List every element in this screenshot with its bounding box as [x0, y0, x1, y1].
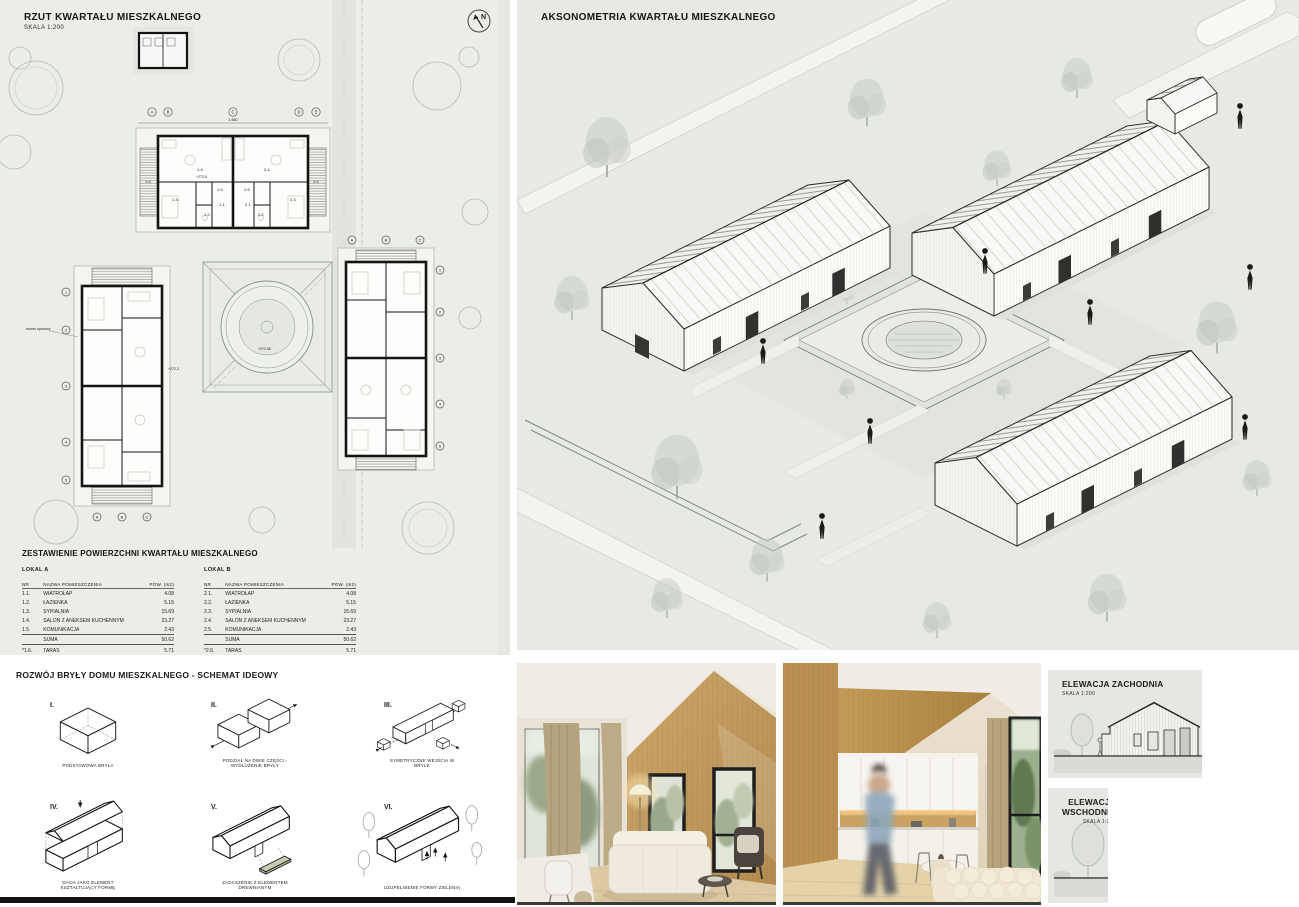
- elevation-west-scale: SKALA 1:200: [1062, 691, 1163, 697]
- massing-grid: I. PODSTAWOWA BRYŁA II.: [0, 680, 510, 906]
- massing-step-2: II. PODZIAŁ NA DWIE CZĘŚCI - WYDŁUŻENIE …: [209, 698, 301, 768]
- svg-text:2.2.: 2.2.: [258, 212, 265, 217]
- svg-text:N: N: [481, 14, 486, 21]
- area-row: 2.5.KOMUNIKACJA2.43: [204, 625, 356, 635]
- massing-numeral: I.: [50, 702, 54, 709]
- plan-plaza: +272,55: [203, 262, 332, 392]
- area-col-header: NR: [204, 580, 225, 589]
- area-summary-title: ZESTAWIENIE POWIERZCHNI KWARTAŁU MIESZKA…: [22, 549, 367, 558]
- axonometry-drawing: [517, 0, 1299, 650]
- svg-text:C: C: [231, 110, 234, 115]
- svg-text:A: A: [96, 515, 99, 520]
- massing-diagram-5: [169, 800, 341, 878]
- area-summary: ZESTAWIENIE POWIERZCHNI KWARTAŁU MIESZKA…: [22, 549, 367, 655]
- massing-caption: PODZIAŁ NA DWIE CZĘŚCI - WYDŁUŻENIE BRYŁ…: [209, 758, 301, 768]
- elevation-west-title: ELEWACJA ZACHODNIA: [1062, 679, 1163, 689]
- area-col-header: NR: [22, 580, 43, 589]
- area-table-lokal-b: LOKAL B NRNAZWA POMIESZCZENIAPOW. (m2)2.…: [204, 567, 356, 655]
- photo-interior-kitchen: [783, 663, 1041, 905]
- massing-step-6: VI.: [382, 800, 462, 890]
- area-row: 1.5.KOMUNIKACJA2.43: [22, 625, 174, 635]
- total-dimension: 1 660: [229, 118, 238, 122]
- massing-title: ROZWÓJ BRYŁY DOMU MIESZKALNEGO - SCHEMAT…: [0, 661, 510, 680]
- massing-numeral: V.: [211, 804, 217, 811]
- elevation-east-title-block: ELEWACJA WSCHODNIA SKALA 1:200: [1062, 797, 1108, 825]
- area-row: 1.1.WIATROŁAP4.08: [22, 589, 174, 599]
- svg-text:B: B: [167, 110, 170, 115]
- massing-numeral: IV.: [50, 804, 58, 811]
- spot-elevation-label: +272,3: [168, 367, 179, 371]
- svg-text:A: A: [351, 238, 354, 243]
- svg-text:1.6.: 1.6.: [145, 179, 152, 184]
- massing-diagram-1: [8, 698, 168, 761]
- page-edge-bar: [0, 897, 515, 903]
- plan-building-right: A B C 1 2 3 4 5: [338, 236, 444, 470]
- axonometry-panel: AKSONOMETRIA KWARTAŁU MIESZKALNEGO: [517, 0, 1299, 650]
- svg-text:B: B: [121, 515, 124, 520]
- elevation-west-card: ELEWACJA ZACHODNIA SKALA 1:200: [1048, 670, 1202, 778]
- area-row: 1.2.ŁAZIENKA5.15: [22, 598, 174, 607]
- area-row: 1.4.SALON Z ANEKSEM KUCHENNYM23.27: [22, 616, 174, 625]
- area-suma-row: SUMA50.62: [204, 635, 356, 645]
- massing-step-5: V.: [209, 800, 301, 890]
- area-row: 2.1.WIATROŁAP4.08: [204, 589, 356, 599]
- svg-text:2.6.: 2.6.: [313, 179, 320, 184]
- area-footnote-row: *1.6.TARAS5.71: [22, 645, 174, 656]
- elevations-panel: ELEWACJA ZACHODNIA SKALA 1:200: [1048, 670, 1297, 903]
- plan-refuse-building: [133, 27, 193, 74]
- spot-elevation-label: +272,6: [196, 175, 207, 179]
- massing-step-4: IV.: [48, 800, 128, 890]
- area-col-header: POW. (m2): [320, 580, 356, 589]
- desk-and-chair: [517, 853, 595, 905]
- site-plan-title-block: RZUT KWARTAŁU MIESZKALNEGO SKALA 1:200: [24, 12, 201, 31]
- area-col-header: POW. (m2): [138, 580, 174, 589]
- massing-diagram-3: [342, 698, 502, 756]
- site-plan-title: RZUT KWARTAŁU MIESZKALNEGO: [24, 12, 201, 23]
- svg-text:1.5.: 1.5.: [217, 187, 224, 192]
- svg-text:2.5.: 2.5.: [244, 187, 251, 192]
- massing-caption: UZUPEŁNIENIE FORMY ZIELENIĄ: [384, 885, 460, 890]
- elevation-trees: [1053, 822, 1108, 879]
- window-right: [987, 718, 1041, 893]
- svg-text:2.4.: 2.4.: [264, 167, 271, 172]
- svg-text:1.1.: 1.1.: [219, 202, 226, 207]
- axonometry-title: AKSONOMETRIA KWARTAŁU MIESZKALNEGO: [541, 12, 776, 23]
- area-footnote-row: *2.6.TARAS5.71: [204, 645, 356, 656]
- svg-text:1.2.: 1.2.: [204, 212, 211, 217]
- svg-text:C: C: [419, 238, 422, 243]
- presentation-board: 1.1. 1.2. 1.3. 1.4. 1.5. 1.6. 2.1. 2.2. …: [0, 0, 1299, 907]
- area-table: NRNAZWA POMIESZCZENIAPOW. (m2)1.1.WIATRO…: [22, 580, 174, 655]
- plan-building-top: [136, 128, 330, 232]
- massing-caption: SYMETRYCZNE WEJŚCIA W BRYLE: [382, 758, 462, 768]
- lokal-a-label: LOKAL A: [22, 567, 174, 576]
- massing-caption: ZADASZENIE Z ELEMENTEM DREWNIANYM: [209, 880, 301, 890]
- svg-text:C: C: [146, 515, 149, 520]
- svg-text:2.3.: 2.3.: [290, 197, 297, 202]
- area-table: NRNAZWA POMIESZCZENIAPOW. (m2)2.1.WIATRO…: [204, 580, 356, 655]
- svg-text:E: E: [315, 110, 318, 115]
- retaining-wall-label: murek oporowy: [26, 327, 51, 331]
- elevation-east-card: ELEWACJA WSCHODNIA SKALA 1:200: [1048, 788, 1108, 903]
- svg-text:1.4.: 1.4.: [197, 167, 204, 172]
- lokal-b-label: LOKAL B: [204, 567, 356, 576]
- svg-text:A: A: [151, 110, 154, 115]
- area-row: 1.3.SYPIALNIA15.69: [22, 607, 174, 616]
- site-plan-scale: SKALA 1:200: [24, 25, 201, 31]
- svg-text:D: D: [297, 110, 300, 115]
- area-row: 2.3.SYPIALNIA15.69: [204, 607, 356, 616]
- svg-text:1.3.: 1.3.: [172, 197, 179, 202]
- svg-text:2.1.: 2.1.: [245, 202, 252, 207]
- elevation-east-title: ELEWACJA WSCHODNIA: [1062, 797, 1108, 817]
- photo-interior-living: [517, 663, 776, 905]
- massing-caption: DACH JAKO ELEMENT KSZTAŁTUJĄCY FORMĘ: [48, 880, 128, 890]
- massing-caption: PODSTAWOWA BRYŁA: [62, 763, 113, 768]
- area-col-header: NAZWA POMIESZCZENIA: [225, 580, 319, 589]
- massing-diagram-2: [169, 698, 341, 756]
- area-col-header: NAZWA POMIESZCZENIA: [43, 580, 137, 589]
- area-table-lokal-a: LOKAL A NRNAZWA POMIESZCZENIAPOW. (m2)1.…: [22, 567, 174, 655]
- svg-text:B: B: [385, 238, 388, 243]
- massing-numeral: III.: [384, 702, 392, 709]
- axonometry-title-block: AKSONOMETRIA KWARTAŁU MIESZKALNEGO: [541, 12, 776, 23]
- massing-diagram-6: [342, 800, 502, 883]
- elevation-person: [1098, 738, 1102, 756]
- area-row: 2.2.ŁAZIENKA5.15: [204, 598, 356, 607]
- elevation-west-title-block: ELEWACJA ZACHODNIA SKALA 1:200: [1062, 679, 1163, 697]
- site-plan-panel: 1.1. 1.2. 1.3. 1.4. 1.5. 1.6. 2.1. 2.2. …: [0, 0, 510, 655]
- area-row: 2.4.SALON Z ANEKSEM KUCHENNYM23.27: [204, 616, 356, 625]
- elevation-east-scale: SKALA 1:200: [1062, 819, 1108, 825]
- massing-numeral: VI.: [384, 804, 393, 811]
- massing-numeral: II.: [211, 702, 217, 709]
- north-arrow-icon: N: [466, 8, 492, 34]
- sofa: [602, 831, 718, 903]
- area-suma-row: SUMA50.62: [22, 635, 174, 645]
- massing-step-1: I. PODSTAWOWA BRYŁA: [48, 698, 128, 768]
- spot-elevation-label: +272,55: [258, 347, 271, 351]
- massing-diagram-4: [8, 800, 168, 878]
- kitchen: [838, 753, 978, 868]
- massing-panel: ROZWÓJ BRYŁY DOMU MIESZKALNEGO - SCHEMAT…: [0, 661, 510, 907]
- massing-step-3: III.: [382, 698, 462, 768]
